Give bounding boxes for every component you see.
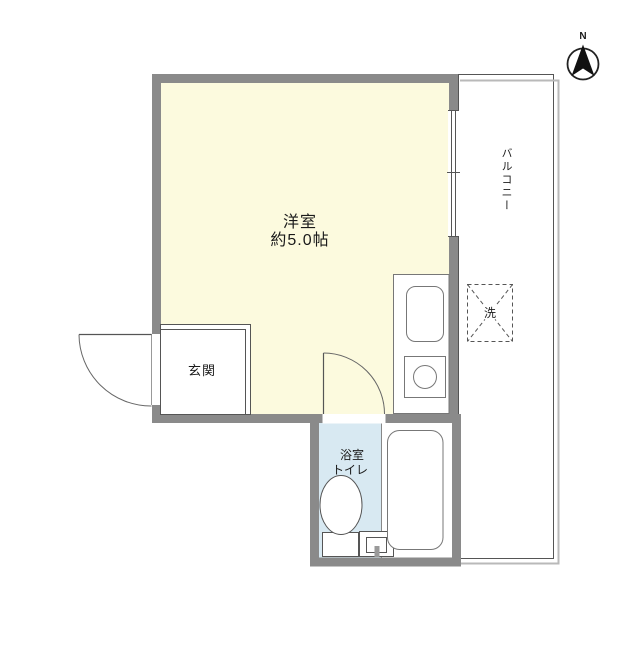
window-opening bbox=[448, 110, 459, 237]
bathtub bbox=[388, 431, 444, 550]
balcony-label: バルコニー bbox=[500, 148, 513, 213]
bathroom-label-line1: 浴室 bbox=[340, 447, 364, 462]
bathroom-label-line2: トイレ bbox=[332, 463, 368, 477]
entrance-area: 玄関 bbox=[161, 325, 251, 415]
laundry-label: 洗 bbox=[484, 306, 496, 320]
laundry-box: 洗 bbox=[468, 285, 513, 342]
bathroom-doorway-opening bbox=[323, 414, 386, 424]
main-room-name-label: 洋室 bbox=[283, 213, 317, 231]
kitchen-counter bbox=[394, 275, 450, 414]
floorplan: N バルコニー 洗 bbox=[0, 0, 640, 640]
compass-north-label: N bbox=[579, 31, 586, 42]
kitchen-sink bbox=[407, 287, 444, 342]
balcony-area: バルコニー 洗 bbox=[459, 75, 559, 564]
entrance-label: 玄関 bbox=[188, 363, 216, 378]
main-room-size-label: 約5.0帖 bbox=[270, 231, 329, 249]
window-glyph bbox=[447, 110, 460, 237]
stove-burner-icon bbox=[414, 366, 437, 389]
toilet-icon bbox=[320, 476, 362, 535]
floorplan-svg: N バルコニー 洗 bbox=[0, 0, 640, 640]
washbasin-tap-icon bbox=[375, 546, 380, 557]
toilet-tank bbox=[323, 533, 359, 557]
